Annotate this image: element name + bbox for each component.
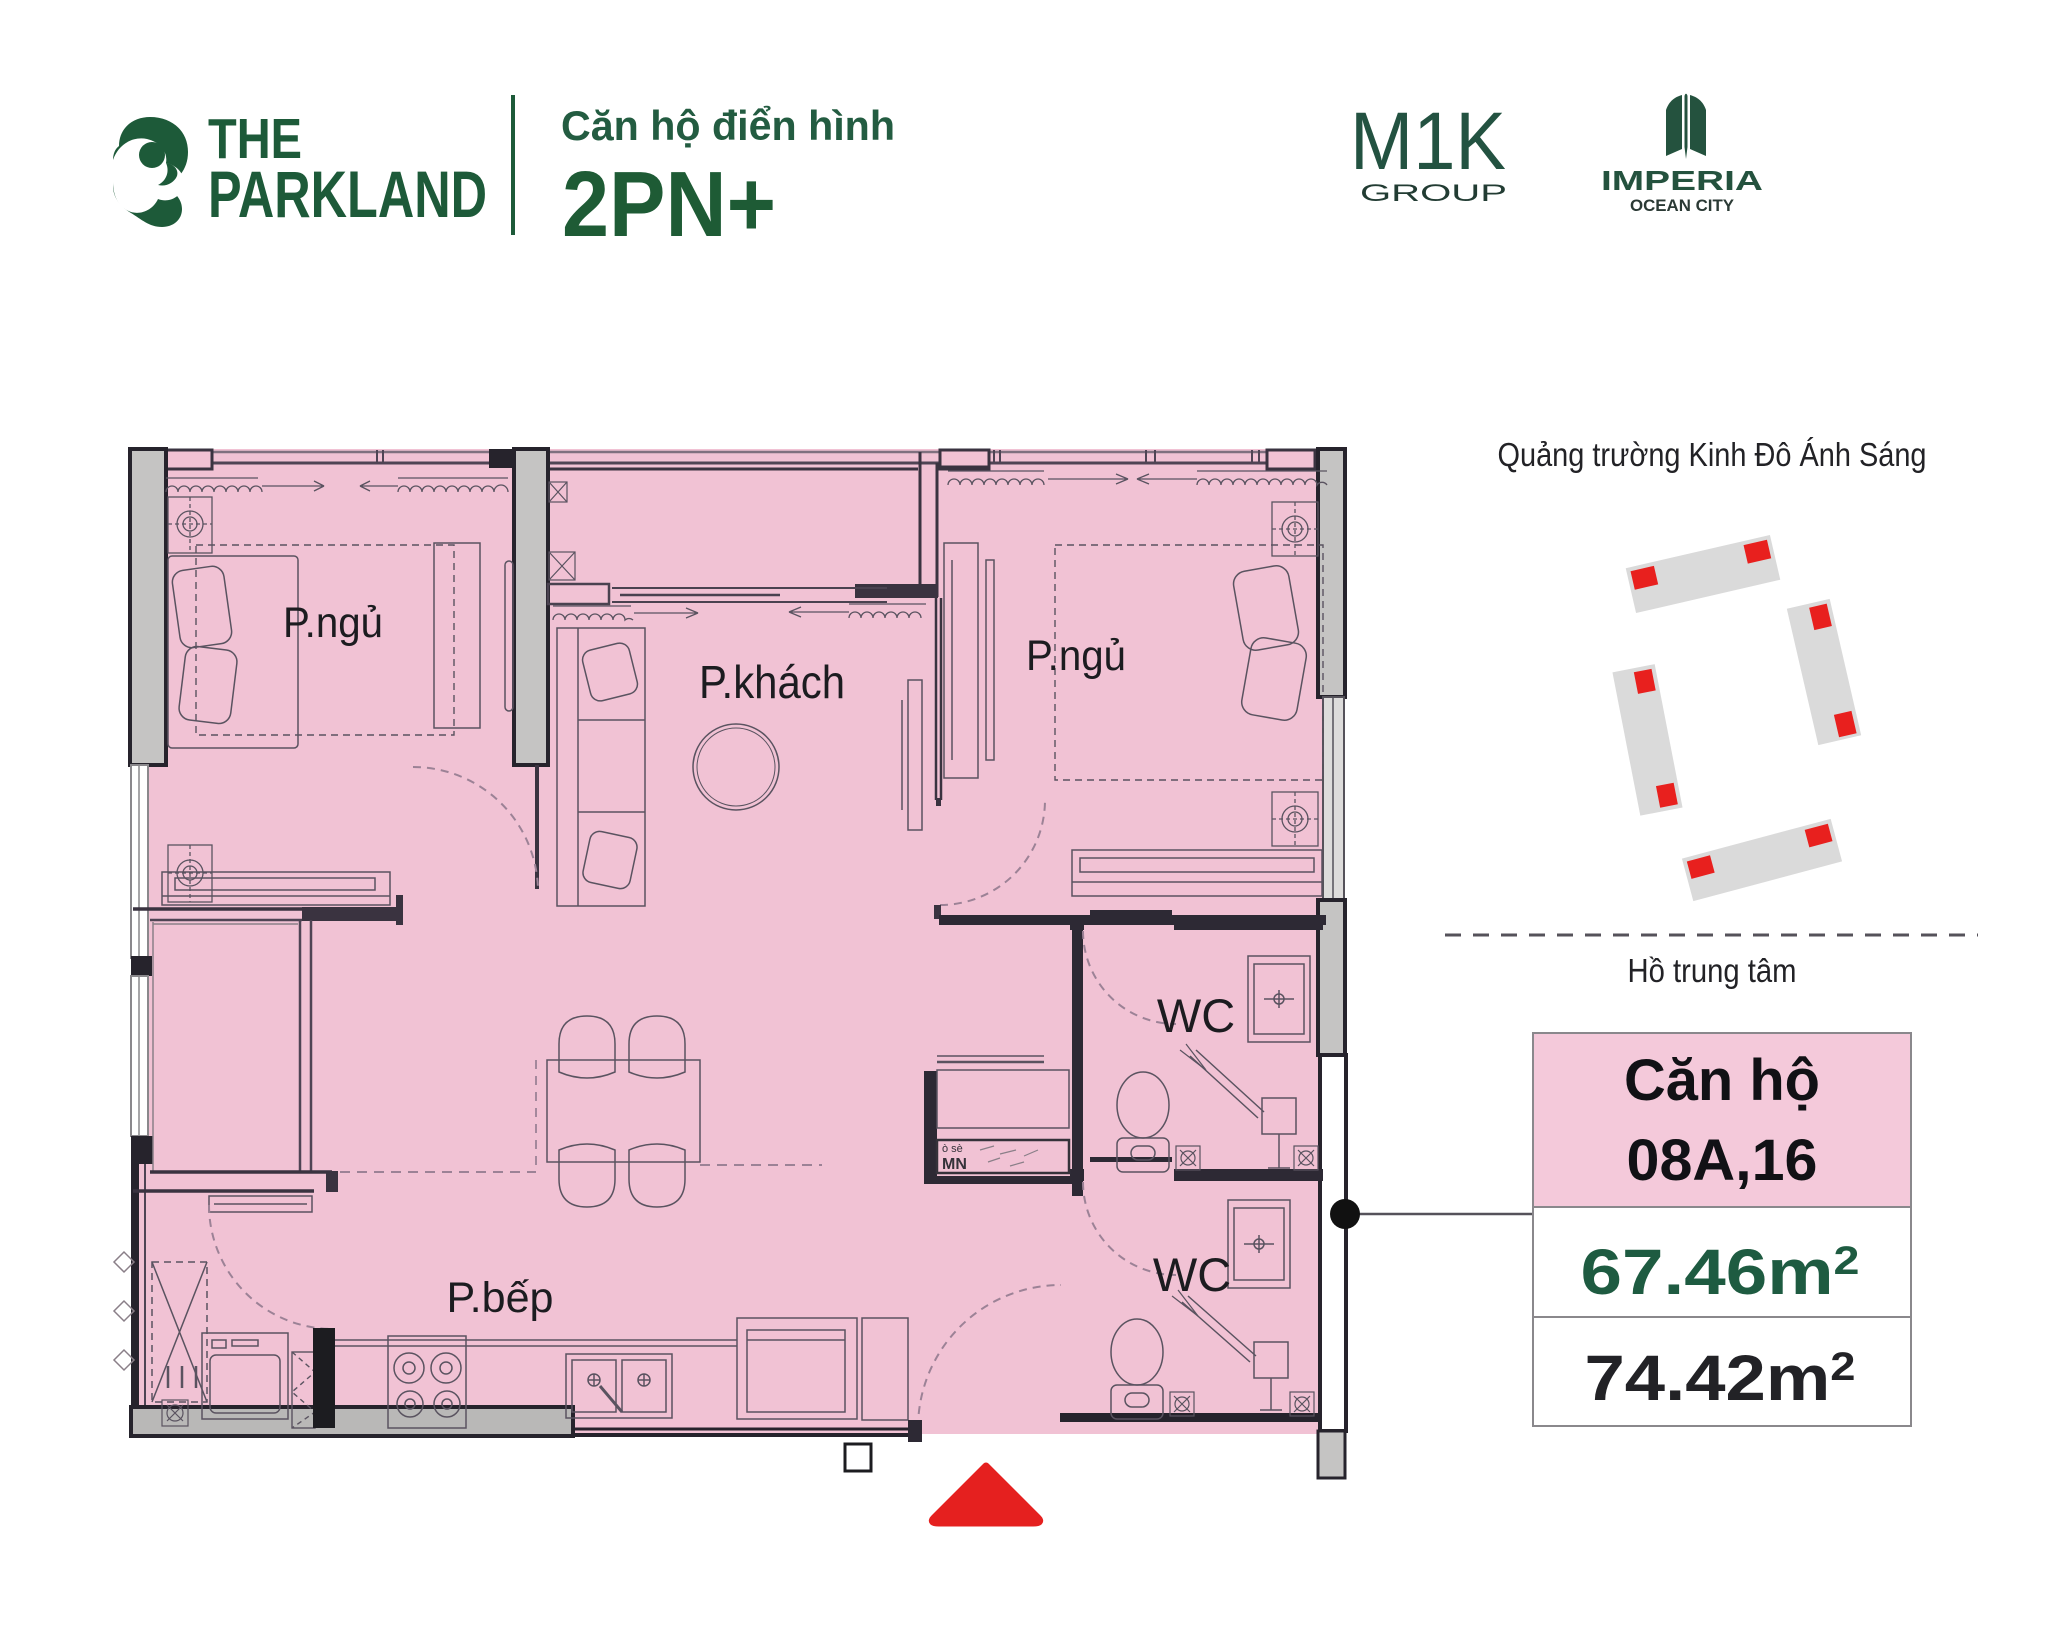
svg-text:2PN+: 2PN+	[562, 152, 776, 256]
svg-text:P.bếp: P.bếp	[447, 1274, 554, 1322]
svg-text:P.ngủ: P.ngủ	[283, 599, 383, 647]
svg-text:M1K: M1K	[1350, 96, 1506, 187]
svg-text:Quảng trường Kinh Đô Ánh Sáng: Quảng trường Kinh Đô Ánh Sáng	[1498, 436, 1927, 473]
svg-text:08A,16: 08A,16	[1627, 1128, 1818, 1193]
svg-text:WC: WC	[1157, 989, 1235, 1042]
svg-text:P.khách: P.khách	[699, 656, 845, 708]
svg-text:PARKLAND: PARKLAND	[208, 157, 487, 231]
svg-text:GROUP: GROUP	[1360, 180, 1507, 207]
svg-text:67.46m2: 67.46m2	[1581, 1236, 1860, 1308]
svg-text:MN: MN	[942, 1156, 967, 1173]
svg-text:IMPERIA: IMPERIA	[1601, 165, 1763, 196]
svg-text:74.42m2: 74.42m2	[1585, 1342, 1856, 1414]
svg-text:ò sè: ò sè	[942, 1143, 963, 1155]
svg-text:WC: WC	[1153, 1248, 1231, 1301]
svg-text:Căn hộ: Căn hộ	[1624, 1048, 1820, 1113]
svg-text:OCEAN CITY: OCEAN CITY	[1630, 196, 1735, 215]
svg-text:P.ngủ: P.ngủ	[1026, 632, 1126, 680]
svg-text:Hồ trung tâm: Hồ trung tâm	[1628, 952, 1797, 989]
svg-text:Căn hộ điển hình: Căn hộ điển hình	[561, 102, 895, 149]
